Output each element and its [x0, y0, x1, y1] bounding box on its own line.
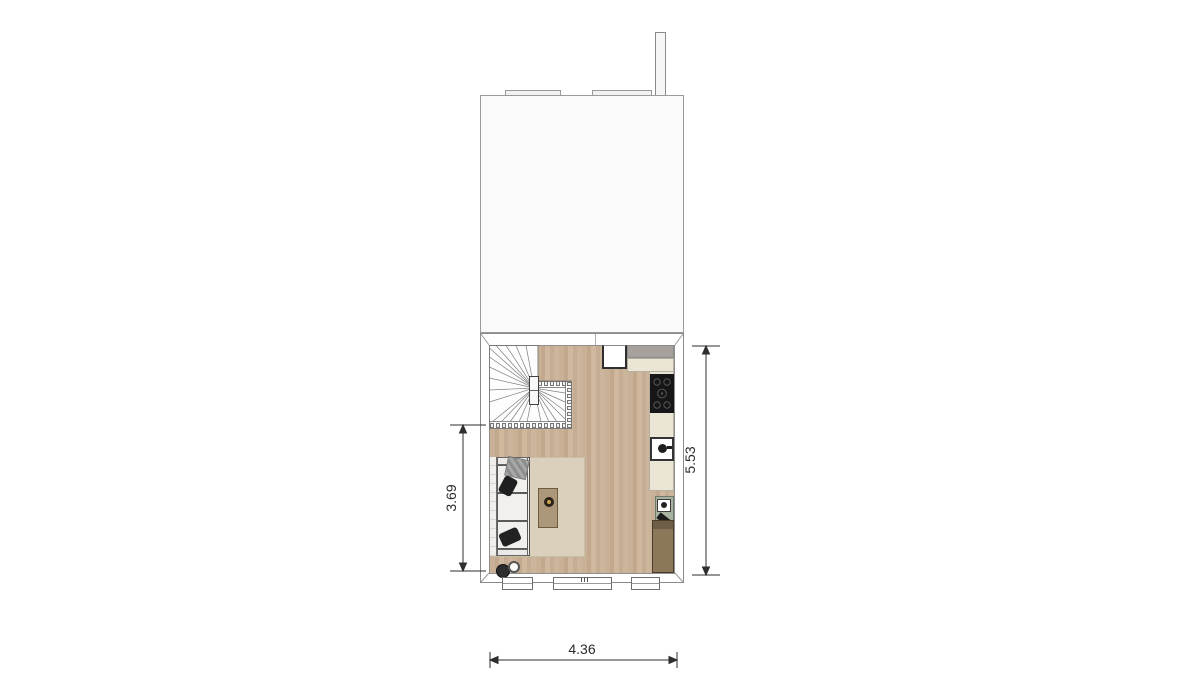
sofa-cushion [497, 493, 528, 521]
sink-drain-icon [658, 444, 667, 453]
appliance-knob-icon [661, 502, 667, 508]
upper-floor-area [480, 95, 684, 333]
window-center-handle-icon [581, 577, 588, 582]
floor-plan: 3.69 5.53 4.36 [0, 0, 1200, 675]
dimension-label-left: 3.69 [437, 484, 465, 512]
sink-tap-icon [667, 446, 672, 449]
roof-window-left-icon [505, 90, 561, 96]
stair-railing-top [539, 382, 566, 388]
tall-cabinet [652, 520, 674, 573]
stair-railing-bottom [490, 422, 572, 429]
cooktop [650, 374, 674, 413]
fridge [602, 345, 627, 369]
chimney [655, 32, 666, 98]
kitchen-cabinet-top [627, 358, 674, 372]
coffee-table [538, 488, 558, 528]
stair-railing-right [566, 382, 572, 429]
winder-staircase [489, 345, 572, 429]
table-bowl-detail-icon [547, 500, 551, 504]
window-right [631, 577, 660, 590]
sofa-armrest-bottom [497, 549, 528, 556]
pouf-light [508, 561, 520, 573]
sofa-backrest [490, 457, 497, 556]
dimension-label-bottom: 4.36 [557, 641, 607, 657]
wall-divider [595, 334, 596, 345]
kitchen-counter-top [627, 345, 674, 358]
cooktop-burners-icon [650, 374, 674, 413]
window-left [502, 577, 533, 590]
dimension-label-right: 5.53 [676, 446, 704, 474]
roof-window-right-icon [592, 90, 652, 96]
